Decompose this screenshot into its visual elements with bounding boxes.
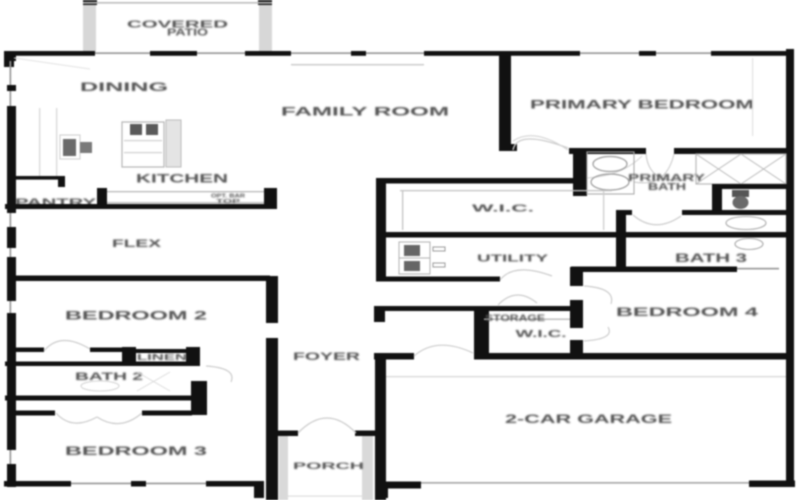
svg-text:2-CAR GARAGE: 2-CAR GARAGE <box>505 412 672 426</box>
svg-text:STORAGE: STORAGE <box>485 313 545 324</box>
svg-text:PATIO: PATIO <box>167 27 208 39</box>
svg-text:FAMILY ROOM: FAMILY ROOM <box>281 105 449 119</box>
svg-text:BATH 3: BATH 3 <box>675 253 747 265</box>
svg-text:W.I.C.: W.I.C. <box>516 329 567 340</box>
svg-text:PORCH: PORCH <box>293 461 364 472</box>
svg-text:LINEN: LINEN <box>137 352 187 362</box>
svg-text:FOYER: FOYER <box>293 351 360 363</box>
svg-text:DINING: DINING <box>80 80 168 94</box>
svg-text:W.I.C.: W.I.C. <box>472 203 534 215</box>
svg-text:FLEX: FLEX <box>112 238 162 250</box>
svg-text:UTILITY: UTILITY <box>477 253 548 265</box>
svg-text:BEDROOM 4: BEDROOM 4 <box>616 305 759 319</box>
svg-text:BEDROOM 3: BEDROOM 3 <box>65 444 208 458</box>
svg-text:PRIMARY BEDROOM: PRIMARY BEDROOM <box>530 98 754 112</box>
svg-text:BEDROOM 2: BEDROOM 2 <box>65 309 208 323</box>
svg-text:KITCHEN: KITCHEN <box>136 172 228 186</box>
svg-text:BATH: BATH <box>648 181 686 193</box>
